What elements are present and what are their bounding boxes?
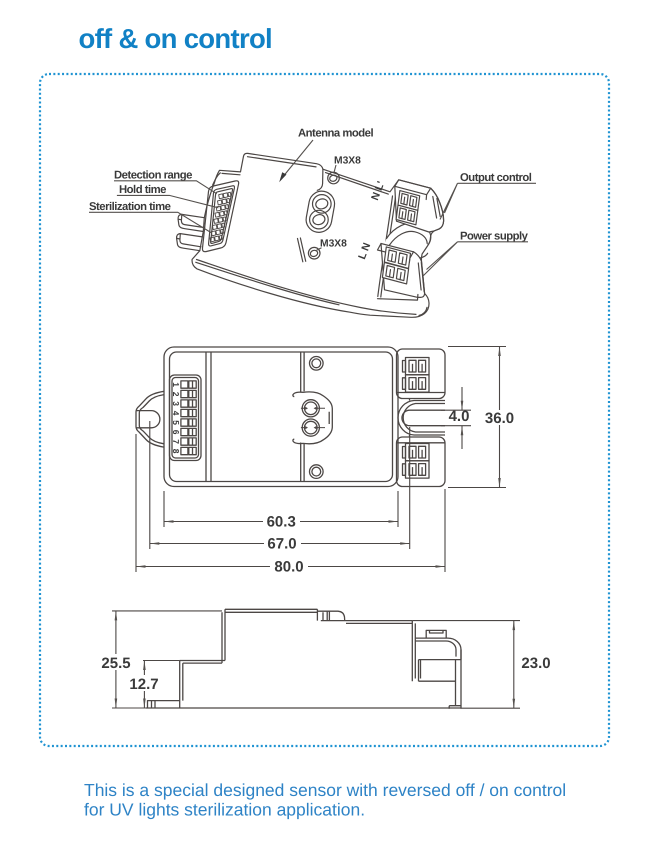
svg-text:7: 7 — [171, 439, 181, 444]
svg-text:Output control: Output control — [460, 172, 532, 184]
svg-text:12.7: 12.7 — [129, 676, 158, 693]
svg-text:4: 4 — [171, 411, 181, 416]
svg-text:67.0: 67.0 — [267, 536, 296, 553]
svg-text:80.0: 80.0 — [274, 558, 303, 575]
svg-text:6: 6 — [171, 430, 181, 435]
svg-text:off & on control: off & on control — [79, 23, 272, 54]
svg-text:This is a special designed sen: This is a special designed sensor with r… — [84, 780, 566, 800]
svg-text:2: 2 — [171, 392, 181, 397]
svg-text:for UV lights sterilization ap: for UV lights sterilization application. — [84, 800, 365, 820]
svg-text:Hold time: Hold time — [119, 184, 166, 196]
svg-text:Power supply: Power supply — [460, 231, 529, 243]
svg-text:8: 8 — [171, 449, 181, 454]
svg-text:36.0: 36.0 — [485, 410, 514, 427]
svg-text:M3X8: M3X8 — [334, 155, 361, 166]
svg-text:23.0: 23.0 — [521, 655, 550, 672]
svg-text:4.0: 4.0 — [449, 408, 470, 425]
svg-text:60.3: 60.3 — [267, 514, 296, 531]
svg-text:3: 3 — [171, 401, 181, 406]
svg-text:25.5: 25.5 — [101, 655, 130, 672]
svg-text:Detection range: Detection range — [114, 170, 192, 182]
svg-text:1: 1 — [171, 382, 181, 387]
svg-text:Antenna model: Antenna model — [298, 128, 373, 140]
svg-text:M3X8: M3X8 — [320, 238, 347, 249]
svg-text:Sterilization time: Sterilization time — [89, 201, 171, 213]
svg-text:5: 5 — [171, 420, 181, 425]
